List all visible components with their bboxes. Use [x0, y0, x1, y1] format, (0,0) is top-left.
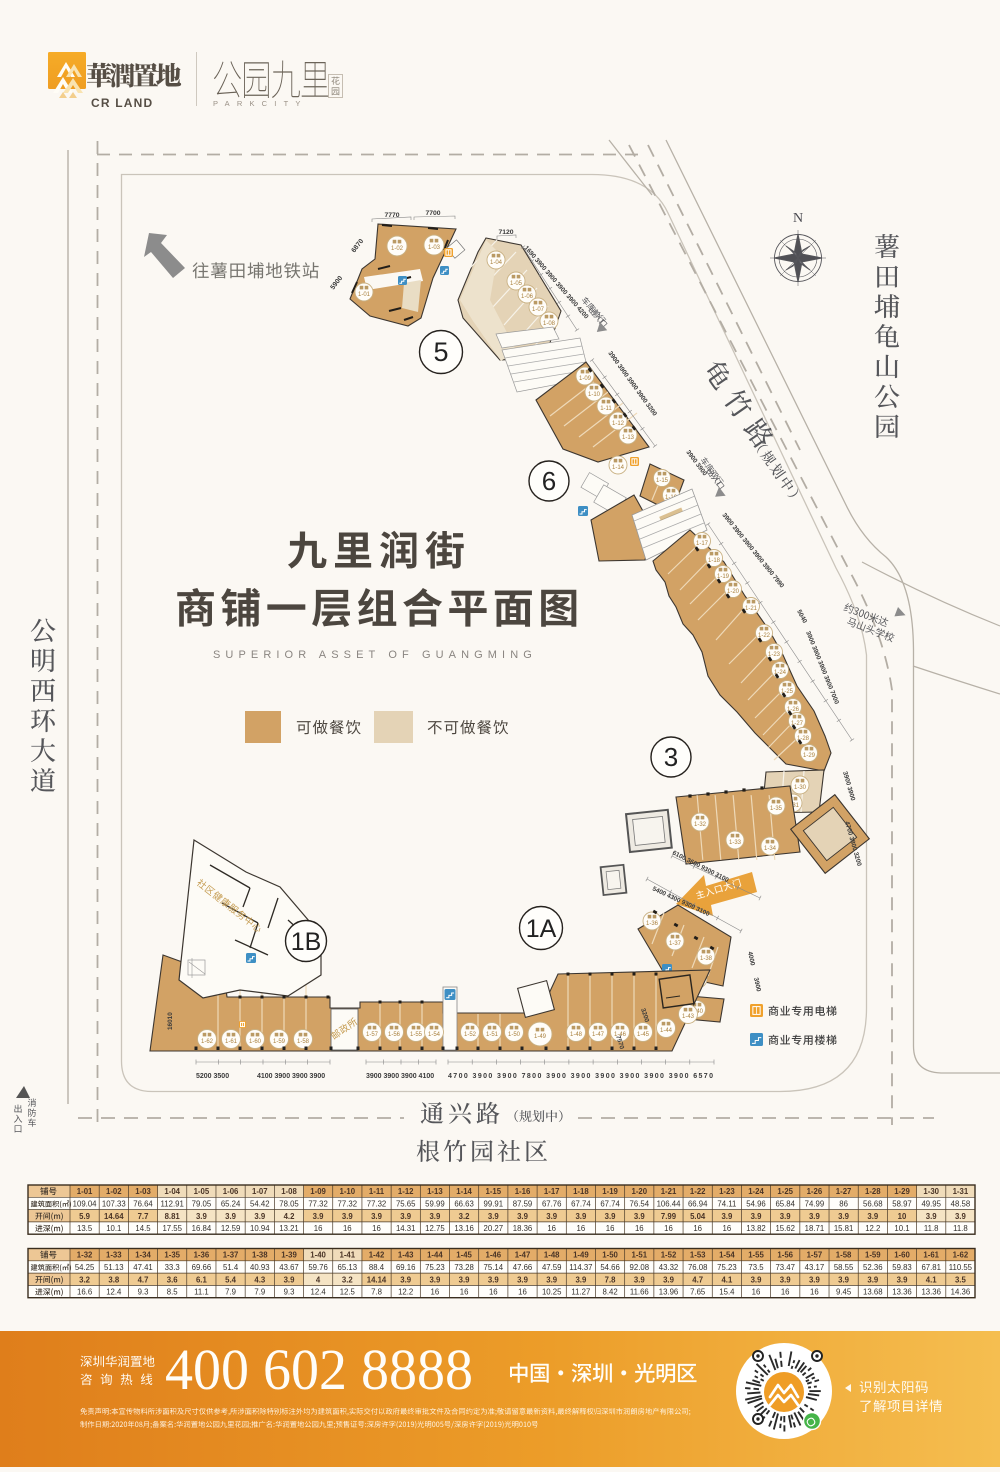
svg-text:1-20: 1-20	[727, 589, 740, 595]
svg-text:3.8: 3.8	[108, 1275, 120, 1284]
svg-text:5: 5	[433, 337, 448, 367]
svg-text:1-56: 1-56	[388, 1032, 401, 1038]
svg-text:1-62: 1-62	[953, 1251, 969, 1260]
svg-text:3.9: 3.9	[517, 1212, 529, 1221]
svg-text:1-57: 1-57	[366, 1032, 379, 1038]
svg-text:40.93: 40.93	[250, 1263, 270, 1272]
svg-text:1-25: 1-25	[777, 1187, 793, 1196]
svg-text:400 602 8888: 400 602 8888	[165, 1337, 473, 1402]
svg-text:PARKCITY: PARKCITY	[213, 99, 308, 108]
svg-text:3.9: 3.9	[459, 1275, 471, 1284]
svg-text:16: 16	[810, 1288, 819, 1297]
svg-text:3.9: 3.9	[634, 1212, 646, 1221]
svg-text:3.9: 3.9	[225, 1212, 237, 1221]
svg-text:16.84: 16.84	[192, 1224, 212, 1233]
svg-text:3.2: 3.2	[459, 1212, 471, 1221]
svg-text:1-59: 1-59	[273, 1039, 286, 1045]
svg-text:4.1: 4.1	[926, 1275, 938, 1284]
svg-text:3.9: 3.9	[575, 1212, 587, 1221]
svg-text:107.33: 107.33	[102, 1200, 126, 1209]
svg-text:9.45: 9.45	[836, 1288, 852, 1297]
svg-text:12.5: 12.5	[340, 1288, 356, 1297]
svg-text:106.44: 106.44	[657, 1200, 682, 1209]
svg-text:1-29: 1-29	[894, 1187, 910, 1196]
svg-text:1-21: 1-21	[661, 1187, 677, 1196]
svg-text:3.9: 3.9	[809, 1212, 821, 1221]
svg-text:1-26: 1-26	[807, 1187, 823, 1196]
svg-text:3.9: 3.9	[342, 1212, 354, 1221]
svg-text:1-44: 1-44	[660, 1028, 673, 1034]
svg-text:1-40: 1-40	[310, 1251, 326, 1260]
svg-text:1-43: 1-43	[398, 1251, 414, 1260]
svg-text:13.36: 13.36	[921, 1288, 941, 1297]
svg-text:1-13: 1-13	[622, 435, 635, 441]
svg-text:58.97: 58.97	[892, 1200, 912, 1209]
svg-text:16: 16	[752, 1288, 761, 1297]
svg-text:59.83: 59.83	[892, 1263, 912, 1272]
svg-text:1-54: 1-54	[719, 1251, 735, 1260]
svg-text:14.64: 14.64	[104, 1212, 124, 1221]
svg-text:12.4: 12.4	[311, 1288, 327, 1297]
svg-text:69.66: 69.66	[192, 1263, 212, 1272]
svg-text:1-09: 1-09	[579, 376, 592, 382]
svg-text:1-53: 1-53	[690, 1251, 706, 1260]
svg-text:1-33: 1-33	[106, 1251, 122, 1260]
svg-text:16010: 16010	[167, 1012, 174, 1030]
svg-text:4: 4	[316, 1275, 321, 1284]
svg-text:54.25: 54.25	[75, 1263, 95, 1272]
svg-text:7.8: 7.8	[371, 1288, 382, 1297]
svg-text:5.04: 5.04	[690, 1212, 706, 1221]
svg-text:1-29: 1-29	[803, 753, 816, 759]
svg-text:1-14: 1-14	[456, 1187, 472, 1196]
svg-text:1-33: 1-33	[729, 840, 742, 846]
svg-text:1-27: 1-27	[836, 1187, 852, 1196]
svg-text:1-05: 1-05	[510, 281, 523, 287]
svg-text:66.94: 66.94	[688, 1200, 708, 1209]
svg-text:1-30: 1-30	[794, 785, 807, 791]
svg-text:4.3: 4.3	[254, 1275, 266, 1284]
svg-text:3.9: 3.9	[400, 1212, 412, 1221]
svg-text:1-08: 1-08	[543, 321, 556, 327]
svg-text:7.9: 7.9	[254, 1288, 265, 1297]
svg-text:4.7: 4.7	[692, 1275, 703, 1284]
svg-text:6.1: 6.1	[196, 1275, 208, 1284]
svg-text:1-55: 1-55	[748, 1251, 764, 1260]
svg-text:17.55: 17.55	[162, 1224, 182, 1233]
svg-text:1-08: 1-08	[281, 1187, 297, 1196]
svg-text:11.1: 11.1	[194, 1288, 209, 1297]
svg-text:3: 3	[664, 742, 678, 772]
svg-text:51.4: 51.4	[223, 1263, 239, 1272]
svg-text:51.13: 51.13	[104, 1263, 124, 1272]
svg-text:1-34: 1-34	[135, 1251, 151, 1260]
svg-text:7700: 7700	[425, 210, 440, 217]
svg-text:8.42: 8.42	[603, 1288, 618, 1297]
svg-text:74.11: 74.11	[717, 1200, 736, 1209]
svg-text:59.76: 59.76	[308, 1263, 328, 1272]
svg-text:3.9: 3.9	[780, 1212, 792, 1221]
svg-text:114.37: 114.37	[569, 1263, 592, 1272]
svg-text:92.08: 92.08	[630, 1263, 650, 1272]
svg-text:13.16: 13.16	[454, 1224, 474, 1233]
svg-text:16: 16	[781, 1288, 790, 1297]
svg-text:76.08: 76.08	[688, 1263, 708, 1272]
svg-text:73.28: 73.28	[454, 1263, 474, 1272]
svg-text:65.13: 65.13	[338, 1263, 358, 1272]
svg-text:16: 16	[460, 1288, 469, 1297]
svg-text:12.2: 12.2	[398, 1288, 413, 1297]
svg-text:15.62: 15.62	[775, 1224, 795, 1233]
svg-text:33.3: 33.3	[165, 1263, 180, 1272]
svg-text:6: 6	[542, 466, 556, 496]
svg-text:4.7: 4.7	[138, 1275, 149, 1284]
svg-text:3.9: 3.9	[254, 1212, 266, 1221]
svg-text:3.9: 3.9	[634, 1275, 646, 1284]
svg-text:1-19: 1-19	[602, 1187, 618, 1196]
svg-text:16: 16	[693, 1224, 702, 1233]
svg-text:1-39: 1-39	[281, 1251, 297, 1260]
svg-text:12.4: 12.4	[106, 1288, 122, 1297]
svg-text:7.9: 7.9	[225, 1288, 236, 1297]
svg-text:1-18: 1-18	[573, 1187, 589, 1196]
svg-text:1-09: 1-09	[310, 1187, 326, 1196]
svg-text:77.32: 77.32	[367, 1200, 387, 1209]
svg-text:1-60: 1-60	[894, 1251, 910, 1260]
svg-text:15.81: 15.81	[834, 1224, 854, 1233]
svg-text:3.9: 3.9	[780, 1275, 792, 1284]
svg-text:76.64: 76.64	[133, 1200, 153, 1209]
svg-text:1-12: 1-12	[612, 421, 625, 427]
svg-text:3.9: 3.9	[897, 1275, 909, 1284]
svg-text:18.71: 18.71	[805, 1224, 825, 1233]
svg-text:47.41: 47.41	[133, 1263, 153, 1272]
svg-text:3.9: 3.9	[546, 1212, 558, 1221]
svg-text:99.91: 99.91	[484, 1200, 504, 1209]
svg-text:3.9: 3.9	[751, 1275, 763, 1284]
svg-text:3.9: 3.9	[196, 1212, 208, 1221]
svg-text:1-12: 1-12	[398, 1187, 414, 1196]
svg-text:1-20: 1-20	[631, 1187, 647, 1196]
svg-text:13.82: 13.82	[746, 1224, 766, 1233]
svg-text:69.16: 69.16	[396, 1263, 416, 1272]
svg-text:1-47: 1-47	[515, 1251, 531, 1260]
svg-text:1-31: 1-31	[953, 1187, 969, 1196]
svg-text:1A: 1A	[526, 915, 557, 943]
svg-text:1-10: 1-10	[588, 392, 601, 398]
svg-text:43.17: 43.17	[805, 1263, 825, 1272]
svg-text:88.4: 88.4	[369, 1263, 385, 1272]
svg-text:52.36: 52.36	[863, 1263, 883, 1272]
svg-text:3.9: 3.9	[809, 1275, 821, 1284]
svg-text:3.9: 3.9	[867, 1212, 879, 1221]
svg-text:1-50: 1-50	[508, 1032, 521, 1038]
svg-text:16: 16	[547, 1224, 556, 1233]
svg-text:16: 16	[635, 1224, 644, 1233]
svg-text:14.5: 14.5	[135, 1224, 151, 1233]
svg-text:1-23: 1-23	[719, 1187, 735, 1196]
svg-text:1B: 1B	[291, 928, 322, 956]
svg-text:1-11: 1-11	[369, 1187, 385, 1196]
svg-text:73.47: 73.47	[775, 1263, 795, 1272]
svg-text:3.9: 3.9	[400, 1275, 412, 1284]
svg-text:1-17: 1-17	[696, 541, 709, 547]
svg-text:3.9: 3.9	[955, 1212, 967, 1221]
svg-text:1-47: 1-47	[592, 1032, 605, 1038]
svg-text:1-35: 1-35	[164, 1251, 180, 1260]
svg-text:3.5: 3.5	[955, 1275, 967, 1284]
svg-text:1-17: 1-17	[544, 1187, 560, 1196]
svg-text:49.95: 49.95	[921, 1200, 941, 1209]
svg-text:3.2: 3.2	[342, 1275, 354, 1284]
svg-text:1-04: 1-04	[490, 260, 503, 266]
svg-text:SUPERIOR ASSET OF GUANGMING: SUPERIOR ASSET OF GUANGMING	[213, 649, 537, 661]
svg-text:4.1: 4.1	[721, 1275, 733, 1284]
svg-text:77.32: 77.32	[308, 1200, 328, 1209]
svg-text:56.68: 56.68	[863, 1200, 883, 1209]
svg-text:11.8: 11.8	[953, 1224, 968, 1233]
svg-text:3.9: 3.9	[605, 1212, 617, 1221]
svg-text:1-07: 1-07	[252, 1187, 268, 1196]
svg-text:78.05: 78.05	[279, 1200, 299, 1209]
svg-text:1-22: 1-22	[690, 1187, 706, 1196]
svg-text:47.59: 47.59	[542, 1263, 562, 1272]
svg-text:4.2: 4.2	[284, 1212, 296, 1221]
svg-text:7.99: 7.99	[661, 1212, 677, 1221]
svg-text:3.9: 3.9	[371, 1212, 383, 1221]
svg-text:1-60: 1-60	[249, 1039, 262, 1045]
svg-text:1-02: 1-02	[391, 246, 404, 252]
svg-text:3900 3900 3900 4100: 3900 3900 3900 4100	[366, 1073, 434, 1080]
svg-text:1-62: 1-62	[201, 1039, 214, 1045]
svg-text:10.25: 10.25	[542, 1288, 562, 1297]
svg-text:16: 16	[606, 1224, 615, 1233]
svg-text:N: N	[793, 211, 803, 226]
svg-text:CR LAND: CR LAND	[91, 96, 153, 110]
svg-text:1-41: 1-41	[339, 1251, 355, 1260]
svg-text:1-16: 1-16	[515, 1187, 531, 1196]
svg-text:1-51: 1-51	[631, 1251, 647, 1260]
svg-text:1-04: 1-04	[164, 1187, 180, 1196]
svg-text:1-51: 1-51	[486, 1032, 499, 1038]
svg-text:3.9: 3.9	[284, 1275, 296, 1284]
svg-text:1-37: 1-37	[669, 941, 682, 947]
svg-text:1-45: 1-45	[456, 1251, 472, 1260]
svg-text:1-49: 1-49	[534, 1034, 547, 1040]
svg-text:43.67: 43.67	[279, 1263, 299, 1272]
svg-text:1-07: 1-07	[532, 307, 545, 313]
svg-text:16: 16	[664, 1224, 673, 1233]
svg-text:1-44: 1-44	[427, 1251, 443, 1260]
svg-text:8.5: 8.5	[167, 1288, 179, 1297]
svg-text:1-42: 1-42	[369, 1251, 385, 1260]
svg-text:8.81: 8.81	[165, 1212, 181, 1221]
svg-text:75.23: 75.23	[425, 1263, 445, 1272]
svg-text:1-43: 1-43	[682, 1014, 695, 1020]
svg-text:16: 16	[431, 1288, 440, 1297]
svg-text:3.9: 3.9	[751, 1212, 763, 1221]
svg-text:1-61: 1-61	[923, 1251, 939, 1260]
svg-text:3.9: 3.9	[488, 1212, 500, 1221]
svg-text:1-59: 1-59	[865, 1251, 881, 1260]
svg-text:1-58: 1-58	[836, 1251, 852, 1260]
svg-text:1-50: 1-50	[602, 1251, 618, 1260]
svg-text:1-36: 1-36	[646, 921, 659, 927]
svg-text:12.59: 12.59	[221, 1224, 241, 1233]
svg-text:87.59: 87.59	[513, 1200, 533, 1209]
svg-text:1-61: 1-61	[225, 1039, 238, 1045]
svg-text:18.36: 18.36	[513, 1224, 533, 1233]
svg-text:1-21: 1-21	[745, 606, 758, 612]
svg-text:11.27: 11.27	[571, 1288, 590, 1297]
svg-text:79.05: 79.05	[192, 1200, 212, 1209]
svg-text:1-32: 1-32	[77, 1251, 93, 1260]
svg-text:1-15: 1-15	[485, 1187, 501, 1196]
svg-text:13.36: 13.36	[892, 1288, 912, 1297]
svg-text:75.65: 75.65	[396, 1200, 416, 1209]
svg-text:1-48: 1-48	[570, 1032, 583, 1038]
svg-text:16: 16	[343, 1224, 352, 1233]
svg-text:3.9: 3.9	[546, 1275, 558, 1284]
svg-text:48.58: 48.58	[951, 1200, 971, 1209]
svg-text:3.9: 3.9	[663, 1275, 675, 1284]
svg-text:11.66: 11.66	[630, 1288, 649, 1297]
svg-text:16: 16	[314, 1224, 323, 1233]
svg-text:16: 16	[489, 1288, 498, 1297]
svg-text:67.74: 67.74	[571, 1200, 591, 1209]
svg-text:3.9: 3.9	[517, 1275, 529, 1284]
svg-text:75.23: 75.23	[717, 1263, 737, 1272]
svg-text:16: 16	[577, 1224, 586, 1233]
svg-text:1-58: 1-58	[297, 1039, 310, 1045]
svg-text:1-05: 1-05	[194, 1187, 210, 1196]
svg-text:3.9: 3.9	[926, 1212, 938, 1221]
svg-text:12.2: 12.2	[865, 1224, 880, 1233]
svg-text:1-49: 1-49	[573, 1251, 589, 1260]
svg-text:1-57: 1-57	[807, 1251, 823, 1260]
svg-text:3.9: 3.9	[488, 1275, 500, 1284]
svg-text:7.65: 7.65	[690, 1288, 706, 1297]
svg-text:9.3: 9.3	[138, 1288, 149, 1297]
svg-text:1-01: 1-01	[77, 1187, 93, 1196]
svg-text:4700 3900 3900 7800 3900 3900: 4700 3900 3900 7800 3900 3900 3900 3900 …	[448, 1073, 713, 1080]
svg-text:13.96: 13.96	[659, 1288, 679, 1297]
svg-text:59.99: 59.99	[425, 1200, 445, 1209]
svg-text:1-13: 1-13	[427, 1187, 443, 1196]
svg-text:13.5: 13.5	[77, 1224, 93, 1233]
svg-text:1-18: 1-18	[708, 558, 721, 564]
svg-text:66.63: 66.63	[454, 1200, 474, 1209]
svg-text:1-06: 1-06	[521, 294, 534, 300]
svg-text:10.94: 10.94	[250, 1224, 270, 1233]
svg-text:3.9: 3.9	[838, 1212, 850, 1221]
svg-text:14.14: 14.14	[367, 1275, 387, 1284]
svg-text:65.24: 65.24	[221, 1200, 241, 1209]
svg-text:1-30: 1-30	[923, 1187, 939, 1196]
svg-text:13.21: 13.21	[279, 1224, 299, 1233]
svg-text:67.76: 67.76	[542, 1200, 562, 1209]
svg-text:1-02: 1-02	[106, 1187, 122, 1196]
svg-text:16: 16	[518, 1288, 527, 1297]
svg-text:3.9: 3.9	[721, 1212, 733, 1221]
svg-text:16: 16	[723, 1224, 732, 1233]
svg-text:12.75: 12.75	[425, 1224, 445, 1233]
svg-text:1-52: 1-52	[661, 1251, 677, 1260]
svg-text:54.66: 54.66	[600, 1263, 620, 1272]
svg-text:67.74: 67.74	[600, 1200, 620, 1209]
svg-text:5.9: 5.9	[79, 1212, 91, 1221]
svg-text:10.1: 10.1	[106, 1224, 121, 1233]
svg-text:1-15: 1-15	[656, 478, 669, 484]
svg-text:9.3: 9.3	[284, 1288, 295, 1297]
svg-text:1-32: 1-32	[694, 822, 707, 828]
svg-text:3.9: 3.9	[429, 1212, 441, 1221]
svg-text:1-34: 1-34	[764, 846, 777, 852]
svg-text:58.55: 58.55	[834, 1263, 854, 1272]
svg-text:1-03: 1-03	[135, 1187, 151, 1196]
svg-text:1-11: 1-11	[600, 406, 612, 412]
svg-text:54.42: 54.42	[250, 1200, 270, 1209]
svg-text:1-38: 1-38	[700, 956, 713, 962]
svg-text:1-56: 1-56	[777, 1251, 793, 1260]
svg-text:1-37: 1-37	[223, 1251, 239, 1260]
svg-text:10: 10	[898, 1212, 907, 1221]
svg-text:20.27: 20.27	[484, 1224, 504, 1233]
svg-text:1-01: 1-01	[358, 292, 371, 298]
svg-text:11.8: 11.8	[924, 1224, 939, 1233]
svg-text:110.55: 110.55	[949, 1263, 973, 1272]
svg-text:112.91: 112.91	[161, 1200, 184, 1209]
svg-text:13.68: 13.68	[863, 1288, 883, 1297]
svg-text:14.31: 14.31	[396, 1224, 416, 1233]
svg-text:3.6: 3.6	[167, 1275, 179, 1284]
svg-text:5200 3500: 5200 3500	[196, 1073, 229, 1080]
svg-text:1-48: 1-48	[544, 1251, 560, 1260]
svg-text:1-03: 1-03	[428, 245, 441, 251]
svg-text:1-14: 1-14	[612, 465, 625, 471]
svg-text:3.9: 3.9	[429, 1275, 441, 1284]
svg-text:73.5: 73.5	[748, 1263, 764, 1272]
svg-text:3.9: 3.9	[838, 1275, 850, 1284]
svg-text:67.81: 67.81	[921, 1263, 941, 1272]
svg-text:1-35: 1-35	[770, 806, 783, 812]
svg-text:3.9: 3.9	[575, 1275, 587, 1284]
svg-text:1-46: 1-46	[485, 1251, 501, 1260]
svg-text:74.99: 74.99	[805, 1200, 825, 1209]
svg-text:3.2: 3.2	[79, 1275, 91, 1284]
svg-text:14.36: 14.36	[951, 1288, 971, 1297]
svg-text:16.6: 16.6	[77, 1288, 92, 1297]
svg-text:86: 86	[839, 1200, 848, 1209]
svg-text:76.54: 76.54	[630, 1200, 650, 1209]
svg-text:5.4: 5.4	[225, 1275, 237, 1284]
svg-text:3.9: 3.9	[313, 1212, 325, 1221]
svg-text:1-24: 1-24	[748, 1187, 764, 1196]
svg-text:15.4: 15.4	[719, 1288, 735, 1297]
svg-text:1-55: 1-55	[410, 1032, 423, 1038]
svg-text:47.66: 47.66	[513, 1263, 533, 1272]
svg-text:43.32: 43.32	[659, 1263, 679, 1272]
svg-text:75.14: 75.14	[484, 1263, 504, 1272]
svg-text:1-38: 1-38	[252, 1251, 268, 1260]
svg-text:10.1: 10.1	[894, 1224, 909, 1233]
svg-text:1-52: 1-52	[464, 1032, 477, 1038]
svg-text:7.8: 7.8	[605, 1275, 617, 1284]
svg-text:54.96: 54.96	[746, 1200, 766, 1209]
svg-text:1-45: 1-45	[637, 1032, 650, 1038]
svg-text:65.84: 65.84	[775, 1200, 795, 1209]
svg-text:1-36: 1-36	[194, 1251, 210, 1260]
